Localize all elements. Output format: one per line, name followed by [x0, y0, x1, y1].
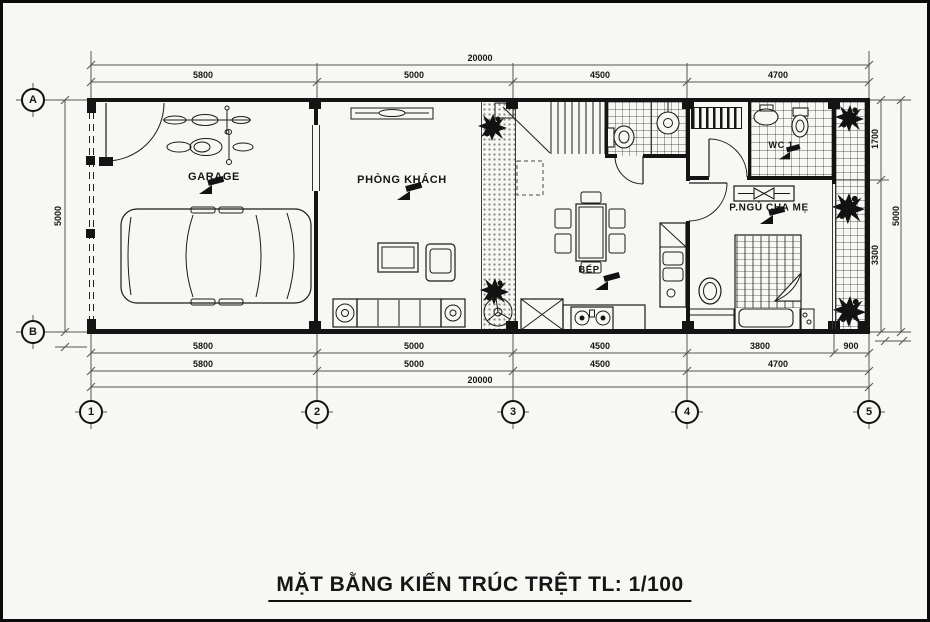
dim-label: 5000	[891, 206, 901, 226]
dim-label: 4500	[590, 359, 610, 369]
grid-bubble-label: 1	[88, 406, 94, 418]
dim-label: 20000	[467, 375, 492, 385]
room-label-garage: GARAGE	[188, 171, 240, 183]
room-label-wc1: WC 1	[769, 140, 794, 150]
dining-table	[555, 192, 625, 273]
wall	[688, 176, 709, 180]
grid-bubble-label: A	[29, 94, 37, 106]
wall-pier	[828, 98, 840, 109]
wall	[605, 154, 617, 158]
wall	[686, 221, 690, 334]
wardrobe	[734, 186, 794, 201]
plant	[480, 278, 509, 305]
grid-bubble-row-a: A	[21, 88, 45, 112]
motorbike-1	[163, 106, 251, 134]
dim-label: 3800	[750, 341, 770, 351]
wall	[748, 100, 751, 180]
wall-pier	[87, 98, 96, 113]
dim-label: 4700	[768, 359, 788, 369]
wall-pier	[86, 156, 95, 165]
sink-counter	[660, 223, 686, 307]
wall	[747, 176, 835, 180]
floor-plan-sheet: 20000 5800 5000 4500 4700 5800 5000 4500…	[0, 0, 930, 622]
wall-pier	[682, 321, 694, 330]
dim-label: 5000	[404, 341, 424, 351]
drawing-title: MẶT BẰNG KIẾN TRÚC TRỆT TL: 1/100	[268, 573, 691, 602]
grid-bubble-label: 2	[314, 406, 320, 418]
window	[312, 125, 320, 191]
stove-counter	[563, 305, 645, 331]
grid-bubble-col-4: 4	[675, 400, 699, 424]
understair-sink	[657, 102, 679, 134]
grid-bubble-row-b: B	[21, 320, 45, 344]
tv-console	[351, 108, 433, 119]
wall-pier	[506, 321, 518, 330]
grid-bubble-label: 4	[684, 406, 690, 418]
shaft-box	[521, 299, 563, 330]
room-label-kitchen: BẾP	[578, 265, 599, 276]
bedroom-shelf	[689, 309, 734, 331]
dimension-ticks	[61, 61, 907, 391]
dim-label: 20000	[467, 53, 492, 63]
grid-bubble-col-2: 2	[305, 400, 329, 424]
wall-pier	[682, 98, 694, 109]
dim-label: 3300	[870, 245, 880, 265]
staircase	[495, 100, 605, 195]
motorbike-2	[167, 130, 253, 165]
wc1-sink	[754, 105, 778, 125]
dim-label: 5000	[53, 206, 63, 226]
grid-bubble-col-5: 5	[857, 400, 881, 424]
nightstand	[800, 309, 814, 330]
wall-pier	[309, 321, 321, 330]
room-label-bedroom: P.NGỦ CHA MẸ	[729, 203, 808, 214]
plant	[832, 193, 865, 224]
entrance-door	[106, 103, 164, 161]
bed	[735, 235, 801, 332]
dim-label: 4700	[768, 70, 788, 80]
car	[121, 207, 311, 305]
wall-pier	[86, 229, 95, 238]
wc1-toilet	[792, 108, 808, 137]
wall	[686, 98, 690, 181]
grid-bubble-col-1: 1	[79, 400, 103, 424]
wall-pier	[87, 319, 96, 334]
grid-bubble-label: 5	[866, 406, 872, 418]
wall	[605, 100, 608, 157]
grid-bubble-label: 3	[510, 406, 516, 418]
plant	[835, 105, 864, 132]
coffee-table	[378, 243, 418, 272]
wall	[832, 98, 836, 184]
wall	[91, 98, 869, 102]
grid-bubble-col-3: 3	[501, 400, 525, 424]
dim-label: 900	[843, 341, 858, 351]
wall-pier	[858, 321, 867, 330]
dim-label: 4500	[590, 341, 610, 351]
dim-label: 1700	[870, 129, 880, 149]
armchair	[426, 244, 455, 281]
understair-toilet	[605, 126, 634, 148]
extension-lines	[91, 51, 911, 402]
dim-label: 5000	[404, 359, 424, 369]
dim-label: 5800	[193, 359, 213, 369]
room-label-living: PHÒNG KHÁCH	[357, 174, 447, 186]
wall	[91, 329, 869, 334]
wall	[643, 154, 687, 158]
wall-pier	[309, 98, 321, 109]
window	[832, 184, 836, 329]
plan-linework	[3, 3, 930, 622]
dimension-lines	[55, 65, 911, 387]
sofa-set	[333, 299, 465, 327]
bedroom-door	[689, 183, 727, 221]
dim-label: 4500	[590, 70, 610, 80]
wall-pier	[506, 98, 518, 109]
understair-wc-door	[615, 156, 643, 184]
dim-label: 5000	[404, 70, 424, 80]
grid-bubble-label: B	[29, 326, 37, 338]
stool	[699, 278, 721, 304]
dim-label: 5800	[193, 341, 213, 351]
dim-label: 5800	[193, 70, 213, 80]
door-leaf-block	[99, 157, 113, 166]
wc1-door	[709, 139, 747, 177]
